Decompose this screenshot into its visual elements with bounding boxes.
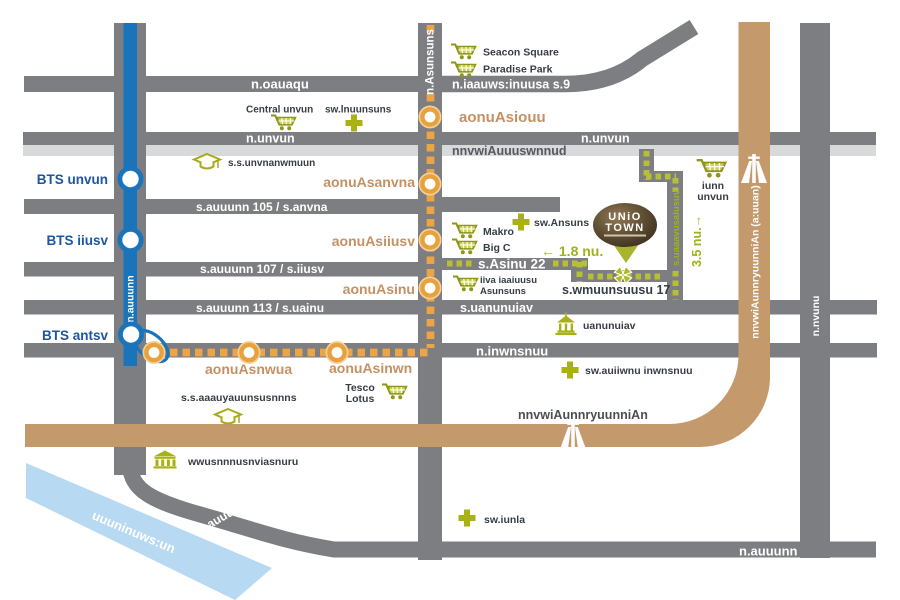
svg-text:aonuAsanvna: aonuAsanvna bbox=[323, 174, 415, 190]
svg-text:aonuAsiiusv: aonuAsiiusv bbox=[332, 233, 415, 249]
svg-text:n.nvunu: n.nvunu bbox=[810, 296, 822, 337]
svg-text:Central unvun: Central unvun bbox=[246, 105, 313, 116]
svg-text:iiva iaaiuusu: iiva iaaiuusu bbox=[480, 275, 537, 286]
svg-text:unvun: unvun bbox=[697, 191, 729, 203]
svg-text:aonuAsinu: aonuAsinu bbox=[343, 281, 415, 297]
svg-text:s.auuunn 105 / s.anvna: s.auuunn 105 / s.anvna bbox=[196, 200, 328, 214]
svg-text:BTS antsv: BTS antsv bbox=[42, 328, 109, 343]
svg-text:nnvwiAunnryuunniAn (a:uuan): nnvwiAunnryuunniAn (a:uuan) bbox=[750, 185, 762, 338]
svg-text:aonuAsinwn: aonuAsinwn bbox=[329, 360, 412, 376]
svg-text:n.iaauws:inuusa s.9: n.iaauws:inuusa s.9 bbox=[452, 78, 570, 92]
svg-text:nnvwiAunnryuunniAn: nnvwiAunnryuunniAn bbox=[518, 408, 648, 422]
svg-text:sw.auiiwnu inwnsnuu: sw.auiiwnu inwnsnuu bbox=[585, 365, 693, 377]
svg-text:nnvwiAuuuswnnud: nnvwiAuuuswnnud bbox=[452, 144, 567, 158]
svg-text:s.auuunn 107 / s.iiusv: s.auuunn 107 / s.iiusv bbox=[200, 262, 324, 276]
svg-text:s.s.aaauyauunsusnnns: s.s.aaauyauunsusnnns bbox=[181, 392, 297, 404]
svg-text:sw.lnuunsuns: sw.lnuunsuns bbox=[325, 105, 392, 116]
svg-text:sw.Ansuns: sw.Ansuns bbox=[534, 217, 589, 229]
svg-text:s.uanunuiav: s.uanunuiav bbox=[460, 301, 533, 315]
svg-text:Lotus: Lotus bbox=[346, 393, 375, 405]
svg-text:aonuAsnwua: aonuAsnwua bbox=[205, 361, 292, 377]
svg-text:n.Asunsuns: n.Asunsuns bbox=[425, 29, 437, 95]
svg-text:Big C: Big C bbox=[483, 242, 511, 254]
svg-text:wwusnnnusnviasnuru: wwusnnnusnviasnuru bbox=[187, 456, 298, 468]
svg-text:← 1.8 nu.: ← 1.8 nu. bbox=[541, 243, 603, 259]
svg-text:n.unvun: n.unvun bbox=[246, 132, 295, 146]
svg-text:s.wmuunsuusu 17: s.wmuunsuusu 17 bbox=[562, 283, 670, 297]
svg-text:Asunsuns: Asunsuns bbox=[480, 286, 526, 297]
svg-text:TOWN: TOWN bbox=[605, 222, 644, 234]
svg-text:s.s.unvnanwmuun: s.s.unvnanwmuun bbox=[228, 158, 315, 169]
svg-text:n.auuunn: n.auuunn bbox=[125, 275, 137, 322]
svg-text:3.5 nu.→: 3.5 nu.→ bbox=[690, 215, 704, 267]
svg-text:n.unvun: n.unvun bbox=[581, 132, 630, 146]
svg-text:BTS iiusv: BTS iiusv bbox=[46, 233, 108, 248]
svg-text:n.auuunn: n.auuunn bbox=[739, 544, 798, 559]
svg-text:BTS unvun: BTS unvun bbox=[37, 172, 108, 187]
svg-text:aonuAsiouu: aonuAsiouu bbox=[459, 109, 546, 126]
svg-text:s.Asinu 22: s.Asinu 22 bbox=[478, 257, 546, 272]
svg-text:uanunuiav: uanunuiav bbox=[583, 320, 636, 332]
svg-text:s.auuunn 113 / s.uainu: s.auuunn 113 / s.uainu bbox=[196, 301, 324, 315]
svg-text:sw.iunla: sw.iunla bbox=[484, 514, 525, 526]
svg-text:Seacon Square: Seacon Square bbox=[483, 47, 559, 59]
svg-text:Makro: Makro bbox=[483, 226, 514, 238]
svg-text:s.uaaavusaiusuv: s.uaaavusaiusuv bbox=[671, 189, 682, 266]
svg-text:n.oauaqu: n.oauaqu bbox=[251, 77, 309, 92]
svg-text:n.inwnsnuu: n.inwnsnuu bbox=[476, 344, 548, 359]
svg-text:Paradise Park: Paradise Park bbox=[483, 64, 553, 76]
